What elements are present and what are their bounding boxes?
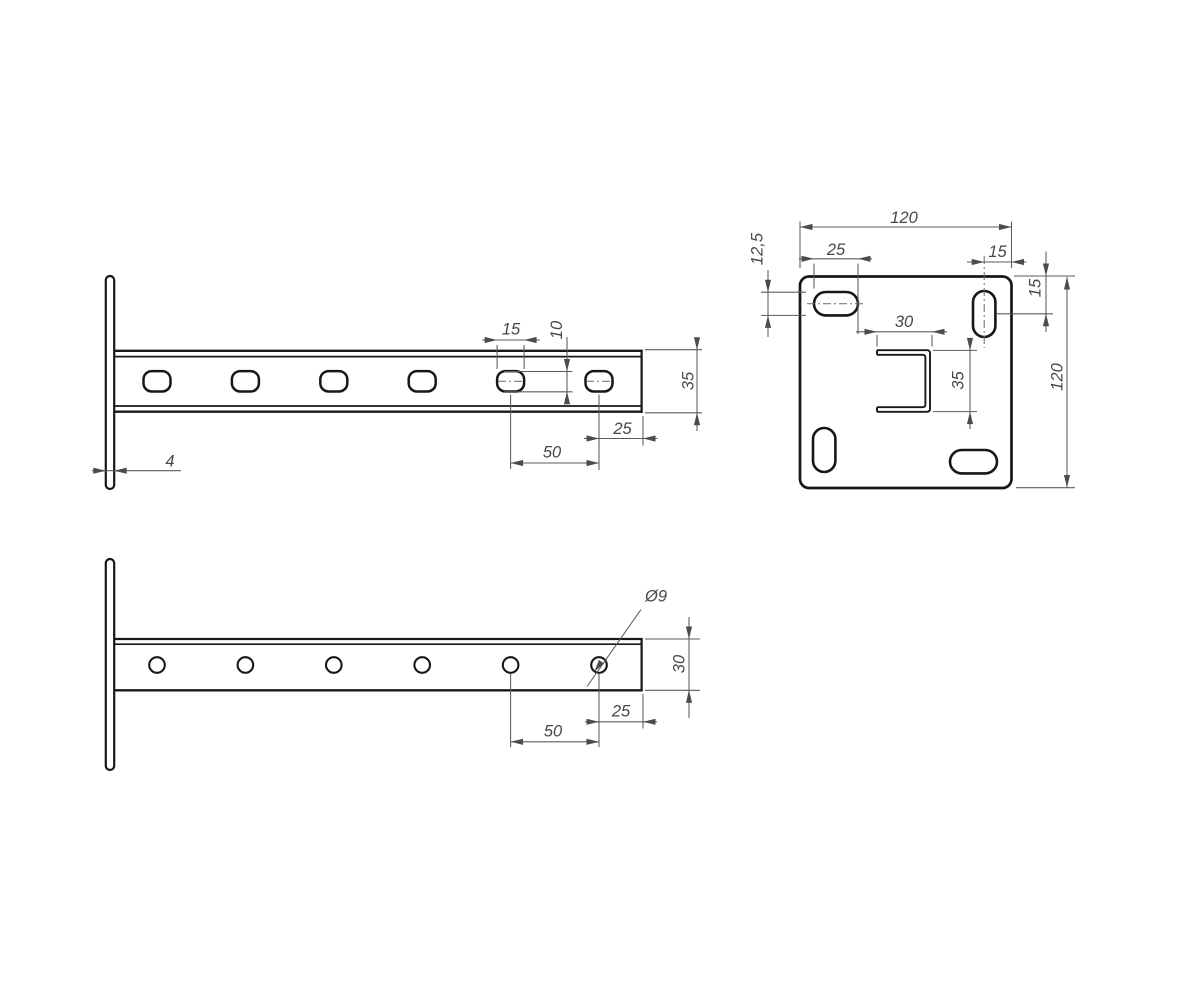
arrowhead [765,315,771,328]
leader-line [587,610,641,687]
arrowhead [858,256,871,262]
arrowhead [972,259,985,265]
hole-3 [326,657,342,673]
arrowhead [643,719,656,725]
arrowhead [511,460,523,466]
dim-label: 15 [988,243,1007,261]
arrowhead [511,739,523,745]
dim-label: 10 [548,320,566,339]
dim-end-offset-25: 25 [585,674,657,748]
arrowhead [686,627,692,640]
view-side-slotted: 15 10 35 25 [92,276,702,489]
part-geometry [106,276,643,489]
view-side-holes: Ø9 30 25 50 [106,559,700,770]
wall-plate-edge [106,276,114,489]
arrowhead [1043,264,1049,277]
dim-label: 25 [611,703,631,721]
dim-slot-width-12-5: 12,5 [749,232,807,337]
dim-label: 30 [895,313,914,331]
arrowhead [587,460,600,466]
arrowhead [1043,314,1049,327]
technical-drawing-svg: 15 10 35 25 [0,0,1200,1000]
wall-plate-edge [106,559,114,770]
arrowhead [485,337,498,343]
slot-3 [320,371,347,391]
base-plate-outline [800,277,1012,489]
dim-label: 4 [165,453,174,471]
hole-5 [503,657,519,673]
arrowhead [564,359,570,372]
arrowhead [93,468,106,474]
slot-1 [144,371,171,391]
view-base-plate: 120 25 12,5 15 [749,209,1076,488]
drawing-canvas: 15 10 35 25 [0,0,1200,1000]
dim-channel-width-30: 30 [645,617,700,718]
arrowhead [114,468,127,474]
arrowhead [1012,259,1025,265]
arrowhead [587,435,600,441]
dim-label: 120 [890,209,918,227]
dim-label: 50 [544,723,563,741]
dim-label: 120 [1049,362,1067,390]
arrowhead [524,337,537,343]
arrowhead [694,413,700,426]
hole-1 [149,657,165,673]
slot-2 [232,371,259,391]
hole-2 [238,657,254,673]
dim-label: 12,5 [749,232,767,265]
round-holes [149,657,607,673]
arrowhead [587,719,600,725]
dim-label: 30 [671,654,689,673]
arrowhead [802,256,815,262]
dim-slot-length-15: 15 [482,321,540,370]
oval-slots [144,371,613,391]
dim-label: 35 [680,371,698,390]
arrowhead [765,280,771,293]
callout-hole-diameter: Ø9 [587,588,667,687]
dim-label: Ø9 [644,588,667,606]
arrowhead [643,435,656,441]
arrowhead [686,690,692,703]
arrowhead [1064,277,1070,290]
arrowhead [694,337,700,350]
arrowhead [800,224,813,230]
dim-label: 15 [1027,278,1045,297]
part-geometry [800,277,1012,489]
dim-label: 15 [502,321,521,339]
dim-channel-height-35: 35 [645,337,702,431]
arrowhead [1064,475,1070,488]
dim-label: 25 [612,420,632,438]
arrowhead [587,739,600,745]
arrowhead [999,224,1012,230]
arrowhead [564,392,570,405]
hole-4 [414,657,430,673]
dim-hole-pitch-50: 50 [511,674,599,748]
slot-4 [409,371,436,391]
dim-label: 25 [826,241,846,259]
dim-label: 35 [950,371,968,390]
dim-label: 50 [543,444,562,462]
